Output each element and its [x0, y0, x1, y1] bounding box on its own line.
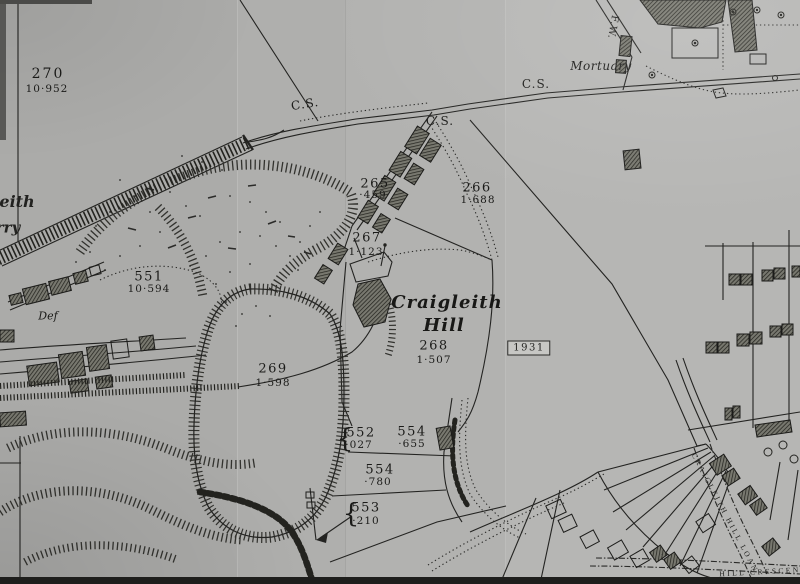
quarry-pit — [194, 289, 344, 538]
outline-buildings — [89, 28, 766, 573]
rough-ground-dots — [75, 155, 321, 327]
os-map-photo: 270 10·952 551 10·594 265 ·459 266 1·688… — [0, 0, 800, 584]
tree-chains — [200, 420, 468, 580]
date-stamp-1931: 1931 — [507, 341, 550, 356]
unfenced-road-edges — [590, 444, 800, 578]
arrow-head — [316, 532, 328, 543]
tree-symbols — [384, 7, 798, 463]
boundary-lines — [0, 0, 800, 584]
map-linework — [0, 0, 800, 584]
